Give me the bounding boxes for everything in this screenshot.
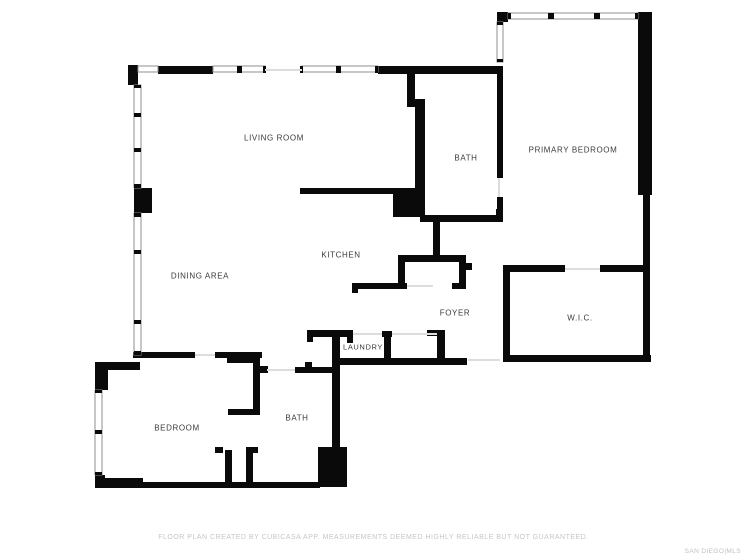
room-label-bedroom: BEDROOM: [154, 424, 200, 433]
room-label-bath-upper: BATH: [454, 154, 477, 163]
windows-group: [95, 13, 638, 475]
room-label-wic: W.I.C.: [567, 314, 592, 323]
room-label-living-room: LIVING ROOM: [244, 134, 304, 143]
room-label-laundry: LAUNDRY: [343, 343, 383, 352]
door-openings-group: [195, 69, 600, 371]
footer-disclaimer: FLOOR PLAN CREATED BY CUBICASA APP. MEAS…: [0, 534, 747, 541]
room-label-dining-area: DINING AREA: [171, 272, 229, 281]
room-label-foyer: FOYER: [440, 309, 471, 318]
room-label-kitchen: KITCHEN: [321, 251, 360, 260]
floorplan-page: LIVING ROOM DINING AREA KITCHEN BATH PRI…: [0, 0, 747, 560]
floorplan-drawing: [0, 0, 747, 560]
walls-group: [95, 12, 652, 488]
window-mullions-group: [95, 13, 638, 475]
room-label-bath-lower: BATH: [285, 414, 308, 423]
room-label-primary-bedroom: PRIMARY BEDROOM: [529, 146, 618, 155]
mls-watermark: SAN DIEGO|MLS: [685, 548, 741, 555]
